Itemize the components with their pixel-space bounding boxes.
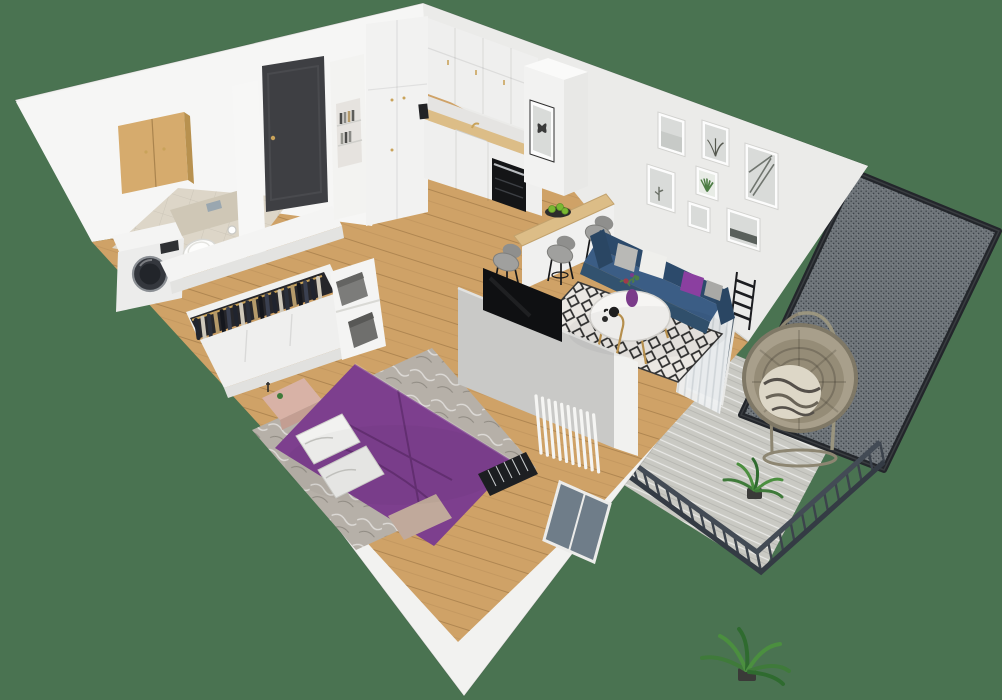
butterfly-print bbox=[530, 100, 554, 162]
kitchen-column bbox=[524, 58, 588, 196]
hallway bbox=[262, 54, 368, 220]
toilet-paper-holder bbox=[228, 226, 236, 234]
door-handle bbox=[271, 136, 275, 140]
hall-cabinet bbox=[330, 54, 368, 220]
gallery-frame-palm-leaves bbox=[745, 143, 778, 210]
gallery-frame-desert-cactus bbox=[647, 164, 675, 213]
gallery-frame-botanical-twigs bbox=[702, 120, 729, 167]
tall-cabinets bbox=[366, 16, 428, 226]
coffee-machine bbox=[418, 104, 429, 120]
small-plant bbox=[277, 393, 283, 399]
striped-throw bbox=[759, 365, 821, 419]
entry-door bbox=[262, 56, 328, 212]
apartment-render bbox=[0, 0, 1002, 700]
